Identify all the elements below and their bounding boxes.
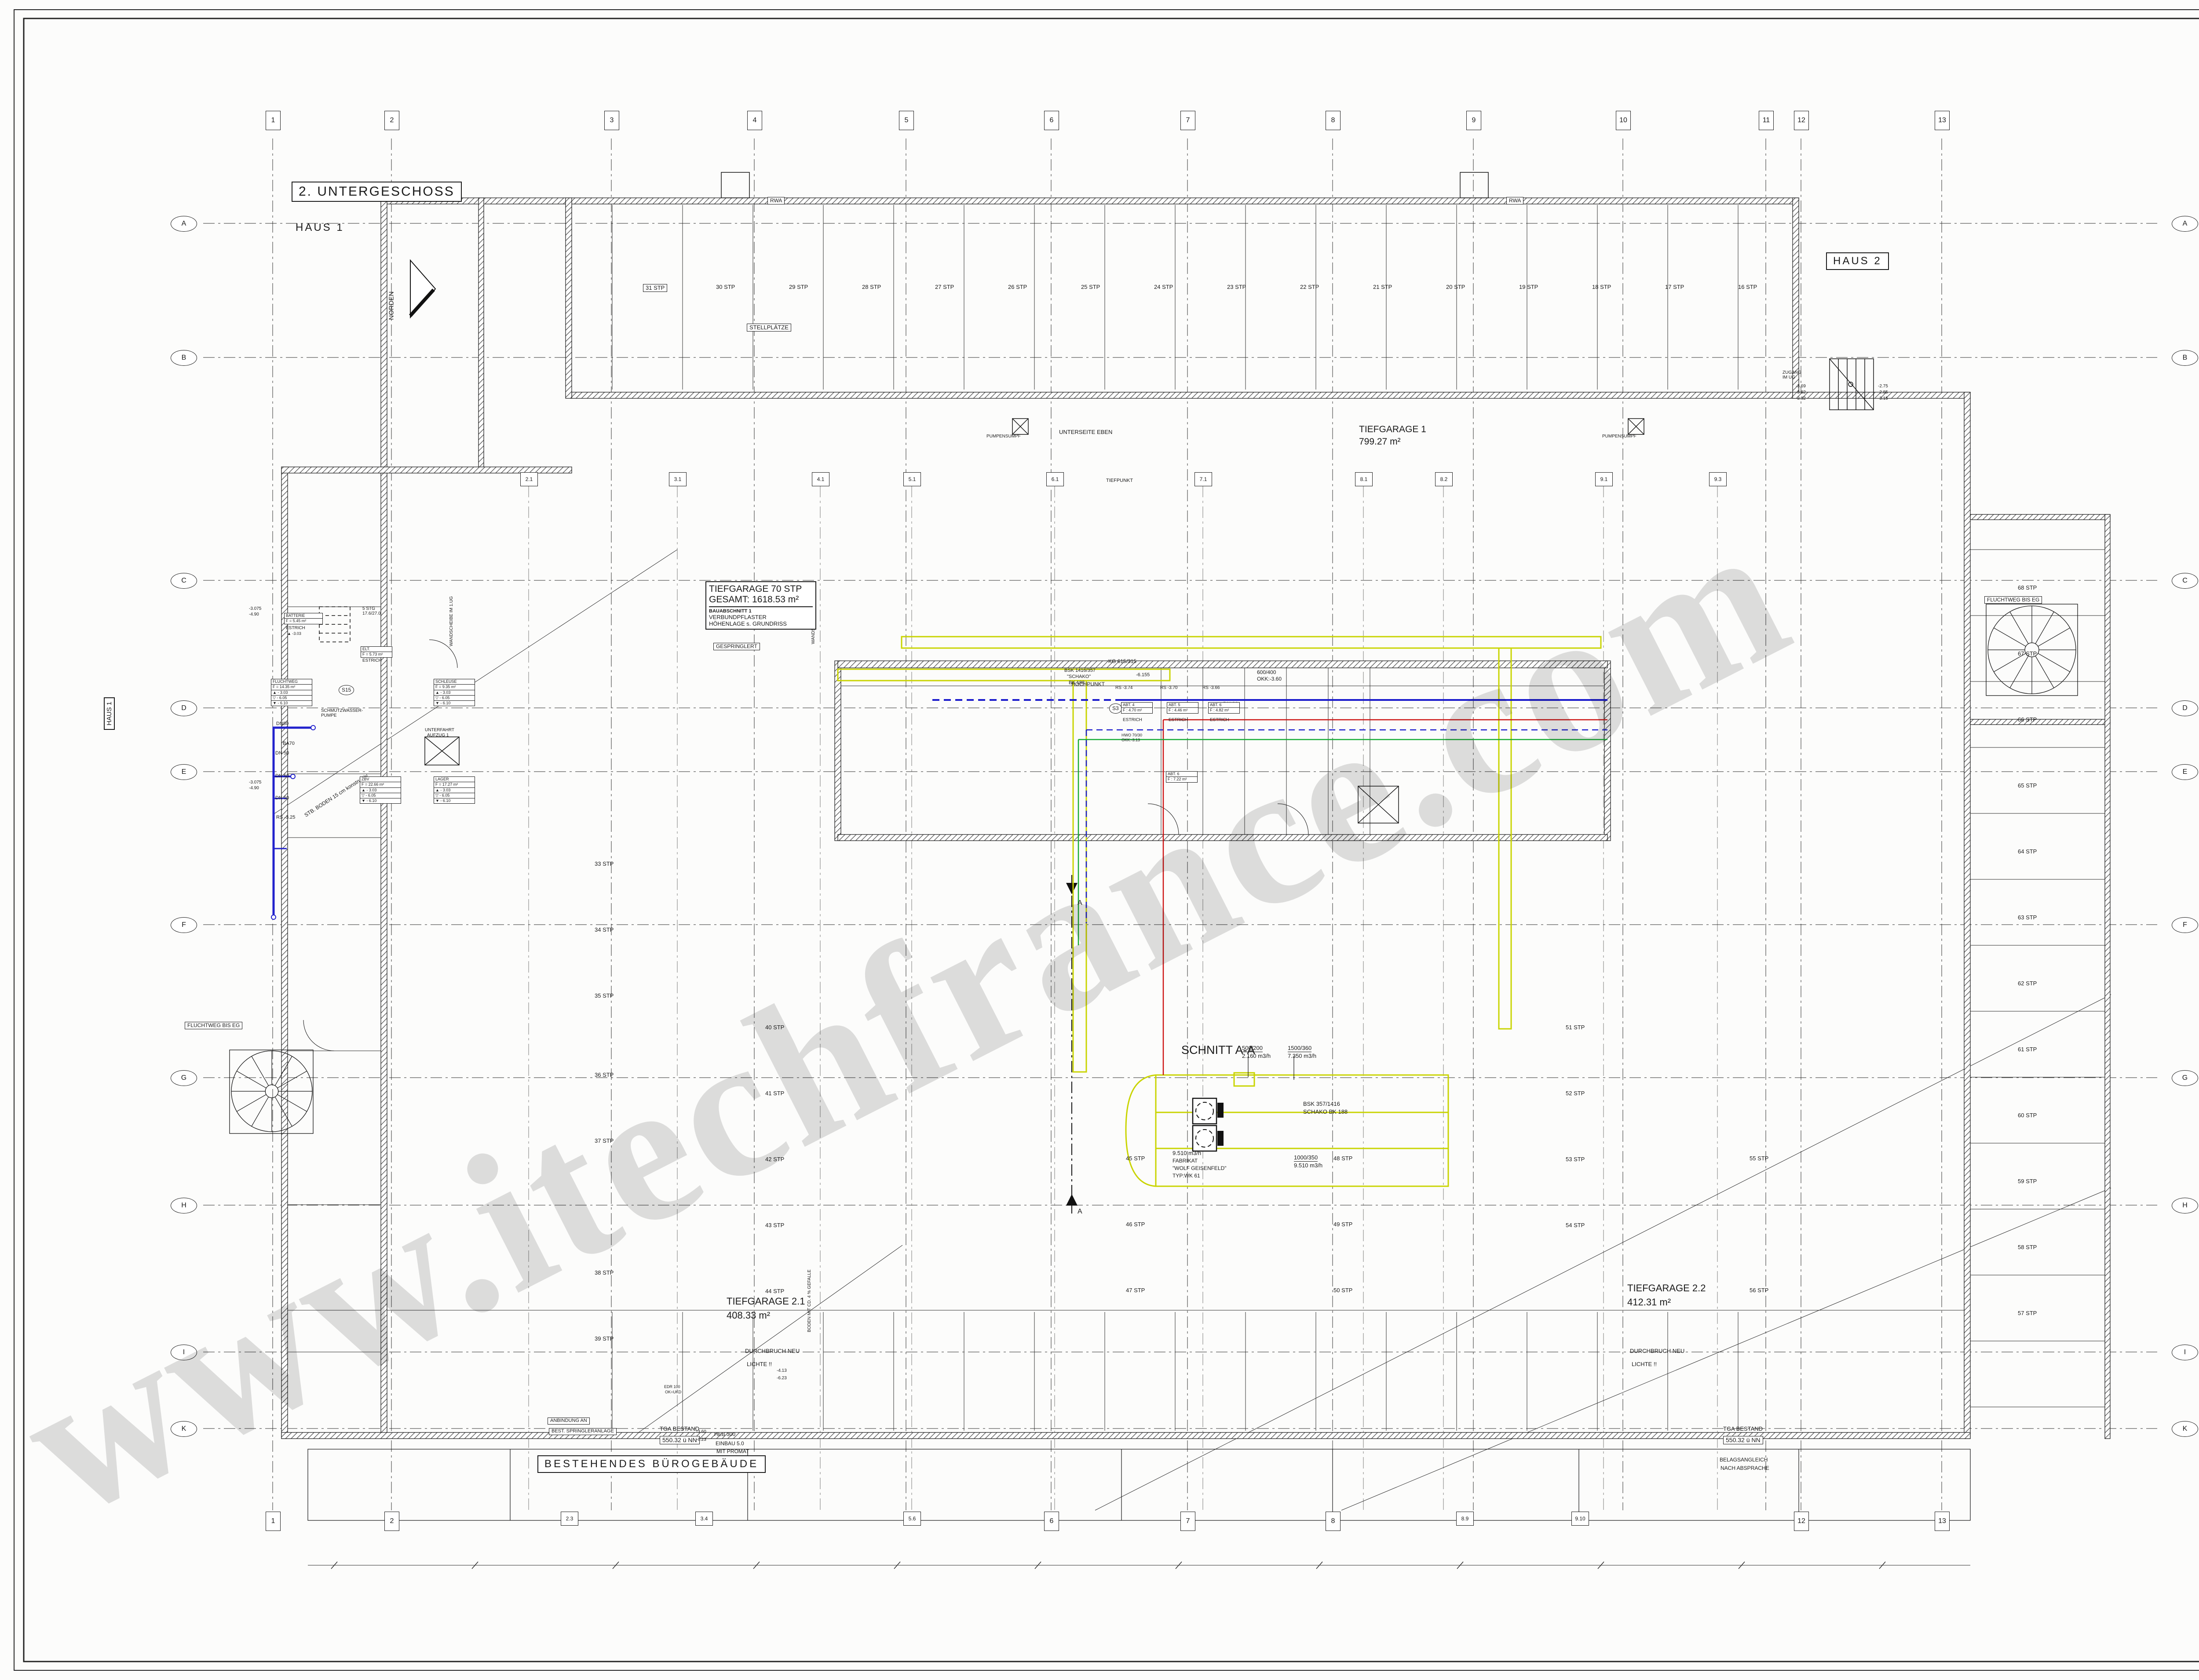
annotation: TIEFPUNKT bbox=[1106, 478, 1133, 484]
annotation: GESPRINGLERT bbox=[713, 643, 760, 650]
stall-label: 65 STP bbox=[2018, 783, 2037, 789]
stall-label: 50 STP bbox=[1333, 1287, 1352, 1294]
grid-bubble: H bbox=[2172, 1198, 2198, 1214]
stall-label: 21 STP bbox=[1373, 284, 1392, 290]
annotation: ▲ -3.03 bbox=[287, 632, 301, 636]
room-label-block: LAGERF = 17.27 m²▲ - 3.03▽ - 6.05▼ - 6.1… bbox=[434, 776, 475, 804]
grid-bubble: 9.3 bbox=[1709, 472, 1727, 486]
haus2-label: HAUS 2 bbox=[1826, 252, 1889, 270]
annotation: 5 STG bbox=[362, 607, 375, 612]
stall-label: 27 STP bbox=[935, 284, 954, 290]
annotation: 412.31 m² bbox=[1627, 1297, 1671, 1307]
room-label-line: BATTERIE bbox=[285, 613, 322, 619]
room-label-block: ABT. 6F : 7.22 m² bbox=[1166, 771, 1198, 783]
annotation: -3.075 bbox=[249, 780, 261, 785]
grid-bubble: E bbox=[2172, 764, 2198, 780]
grid-bubble: B bbox=[2172, 350, 2198, 366]
grid-bubble: 6 bbox=[1044, 111, 1059, 130]
annotation: 1000/350 bbox=[1294, 1155, 1318, 1162]
grid-bubble: 8 bbox=[1326, 111, 1341, 130]
stall-label: 37 STP bbox=[595, 1138, 614, 1144]
tg70-line3: BAUABSCHNITT 1 bbox=[709, 609, 813, 614]
grid-bubble: 8 bbox=[1326, 1512, 1341, 1531]
norden-label: NORDEN bbox=[388, 292, 395, 320]
stall-label: 30 STP bbox=[716, 284, 735, 290]
grid-bubble: 12 bbox=[1794, 111, 1809, 130]
annotation: SCHMUTZWASSER- bbox=[321, 709, 363, 714]
annotation: RWA bbox=[767, 197, 785, 204]
annotation: UNTERSEITE EBEN bbox=[1059, 429, 1112, 435]
room-label-line: ABT. 5 bbox=[1167, 703, 1198, 708]
stall-label: 53 STP bbox=[1566, 1156, 1585, 1163]
room-label-block: ABT. 6F : 4.82 m² bbox=[1208, 702, 1240, 714]
stall-label: 26 STP bbox=[1008, 284, 1027, 290]
grid-bubble: A bbox=[171, 216, 197, 232]
annotation: DN80 bbox=[276, 722, 289, 727]
stall-label: 24 STP bbox=[1154, 284, 1173, 290]
annotation: EINBAU 5.0 bbox=[716, 1441, 744, 1447]
room-label-line: ZBV bbox=[360, 777, 401, 782]
stall-label: 25 STP bbox=[1081, 284, 1100, 290]
stall-label: 66 STP bbox=[2018, 717, 2037, 723]
stall-label: 41 STP bbox=[765, 1090, 784, 1097]
annotation: PUMPE bbox=[321, 714, 337, 718]
annotation: A bbox=[1078, 900, 1082, 907]
stall-label: 34 STP bbox=[595, 927, 614, 933]
room-label-block: ABT. 4F : 4.70 m² bbox=[1121, 702, 1153, 714]
annotation: 9.510 m3/h bbox=[1294, 1163, 1322, 1169]
stall-label: 63 STP bbox=[2018, 915, 2037, 921]
grid-bubble: 1 bbox=[266, 111, 281, 130]
stall-label: 40 STP bbox=[765, 1024, 784, 1031]
grid-bubble: 5 bbox=[899, 111, 914, 130]
grid-bubble: 7 bbox=[1180, 111, 1195, 130]
annotation: DURCHBRUCH NEU bbox=[1630, 1348, 1684, 1354]
room-label-line: ELT. bbox=[361, 647, 392, 652]
grid-bubble: 7.1 bbox=[1194, 472, 1212, 486]
annotation: S3 bbox=[1109, 703, 1122, 714]
stall-label: 44 STP bbox=[765, 1288, 784, 1294]
annotation: -2.85 bbox=[1878, 390, 1888, 395]
annotation: NACH ABSPRACHE bbox=[1720, 1465, 1769, 1471]
room-label-line: ABT. 4 bbox=[1121, 703, 1152, 708]
annotation: HWO 70/30 bbox=[1121, 733, 1142, 737]
annotation: TIEFGARAGE 1 bbox=[1359, 425, 1426, 434]
annotation: BEST. SPRINGLERANLAGE bbox=[549, 1428, 617, 1435]
annotation: EDR 100 bbox=[664, 1385, 680, 1389]
annotation: OKK:-3.60 bbox=[1257, 676, 1282, 682]
annotation: TGA BESTAND bbox=[660, 1426, 699, 1432]
room-label-line: FLUCHTWEG bbox=[271, 679, 312, 685]
room-label-line: F = 5.73 m² bbox=[361, 652, 392, 657]
tg70-line1: TIEFGARAGE 70 STP bbox=[709, 584, 813, 594]
annotation: WANDSCHEIBE IM 1.UG bbox=[449, 596, 454, 646]
room-label-block: SCHLEUSEF = 9.35 m²▲ - 3.03▽ - 6.05▼ - 6… bbox=[434, 679, 475, 706]
room-label-line: LAGER bbox=[434, 777, 475, 782]
annotation: AUFZUG 1 bbox=[427, 733, 449, 738]
stall-label: 22 STP bbox=[1300, 284, 1319, 290]
annotation: BSK 1416/357 bbox=[1064, 668, 1096, 674]
stall-label: 51 STP bbox=[1566, 1024, 1585, 1031]
stall-label: 33 STP bbox=[595, 861, 614, 867]
stall-label: 31 STP bbox=[643, 284, 667, 292]
stall-label: 17 STP bbox=[1665, 284, 1684, 290]
haus1-side-label: HAUS 1 bbox=[104, 697, 115, 730]
stall-label: 67 STP bbox=[2018, 651, 2037, 657]
annotation: LICHTE !! bbox=[747, 1361, 772, 1367]
annotation: ESTRICH bbox=[1169, 718, 1188, 723]
grid-bubble: 11 bbox=[1759, 111, 1774, 130]
annotation: -3.69 bbox=[1796, 384, 1806, 389]
annotation: 550.32 ü NN bbox=[660, 1436, 700, 1444]
stall-label: 23 STP bbox=[1227, 284, 1246, 290]
stall-label: 42 STP bbox=[765, 1156, 784, 1163]
annotation: FLUCHTWEG BIS EG bbox=[1984, 596, 2042, 604]
grid-bubble: 3.1 bbox=[669, 472, 687, 486]
grid-bubble: 5.6 bbox=[903, 1512, 921, 1526]
annotation: UNTERFAHRT bbox=[425, 728, 454, 733]
annotation: RS -3.74 bbox=[1115, 686, 1132, 691]
annotation: -6.23 bbox=[696, 1438, 706, 1443]
annotation: PUMPENSUMPF bbox=[986, 434, 1021, 439]
grid-bubble: 8.2 bbox=[1435, 472, 1453, 486]
stall-label: 62 STP bbox=[2018, 980, 2037, 987]
stall-label: 28 STP bbox=[862, 284, 881, 290]
tg70-line2: GESAMT: 1618.53 m² bbox=[709, 594, 813, 607]
stall-label: 19 STP bbox=[1519, 284, 1538, 290]
grid-bubble: 2.1 bbox=[520, 472, 538, 486]
annotation: BSK 357/1416 bbox=[1303, 1101, 1340, 1107]
room-label-block: ABT. 5F : 4.46 m² bbox=[1167, 702, 1198, 714]
stall-label: 16 STP bbox=[1738, 284, 1757, 290]
stall-label: 46 STP bbox=[1126, 1221, 1145, 1228]
grid-bubble: 8.9 bbox=[1456, 1512, 1474, 1526]
grid-bubble: 2.3 bbox=[561, 1512, 578, 1526]
room-label-line: ▼ - 6.10 bbox=[271, 701, 312, 706]
grid-bubble: 4.1 bbox=[812, 472, 829, 486]
annotation: FLUCHTWEG BIS EG bbox=[185, 1022, 242, 1029]
grid-bubble: 3.4 bbox=[695, 1512, 713, 1526]
grid-bubble: 4 bbox=[747, 111, 762, 130]
annotation: RS -3.66 bbox=[1202, 686, 1220, 691]
annotation: STB. BODEN 15 cm konstruktiv bbox=[303, 773, 369, 818]
stall-label: 47 STP bbox=[1126, 1287, 1145, 1294]
stall-label: 45 STP bbox=[1126, 1155, 1145, 1162]
stall-label: 60 STP bbox=[2018, 1112, 2037, 1119]
grid-bubble: I bbox=[2172, 1345, 2198, 1360]
room-label-line: SCHLEUSE bbox=[434, 679, 475, 685]
grid-bubble: 13 bbox=[1935, 111, 1950, 130]
annotation: -3.60 bbox=[696, 1430, 706, 1435]
room-label-line: F : 7.22 m² bbox=[1166, 777, 1197, 782]
annotation: -6.23 bbox=[777, 1376, 787, 1381]
annotation: BK 188 bbox=[1069, 681, 1085, 686]
room-label-line: F : 4.46 m² bbox=[1167, 708, 1198, 713]
grid-bubble: C bbox=[171, 573, 197, 589]
room-label-block: BATTERIEF = 5.45 m² bbox=[284, 613, 323, 624]
annotation: DN 50 bbox=[275, 774, 289, 779]
stall-label: 20 STP bbox=[1446, 284, 1465, 290]
grid-bubble: 5.1 bbox=[903, 472, 921, 486]
stall-label: 54 STP bbox=[1566, 1222, 1585, 1228]
annotation: 600/400 bbox=[1257, 670, 1276, 675]
floor-title: 2. UNTERGESCHOSS bbox=[292, 182, 462, 202]
annotation: RS -3.70 bbox=[1160, 686, 1177, 691]
stall-label: 55 STP bbox=[1750, 1155, 1768, 1162]
annotation: ESTRICH bbox=[286, 626, 305, 631]
room-label-line: F : 4.82 m² bbox=[1209, 708, 1239, 713]
room-label-line: ▲ - 3.03 bbox=[434, 690, 475, 696]
room-label-line: F = 5.45 m² bbox=[285, 619, 322, 623]
annotation: -6.155 bbox=[1136, 673, 1150, 678]
annotation: DN 50 bbox=[275, 751, 289, 756]
annotation: IM UG bbox=[1783, 375, 1795, 380]
grid-bubble: F bbox=[2172, 917, 2198, 933]
annotation: 1500/360 bbox=[1288, 1045, 1311, 1052]
annotation: -3.15 bbox=[1878, 397, 1888, 401]
stall-label: 36 STP bbox=[595, 1072, 614, 1078]
annotation: LICHTE !! bbox=[1632, 1361, 1657, 1367]
annotation: ANBINDUNG AN bbox=[548, 1418, 590, 1425]
annotation: -2.75 bbox=[1878, 384, 1888, 389]
grid-bubble: 3 bbox=[604, 111, 619, 130]
annotation: BODEN MIT CD. 4 % GEFALLE bbox=[807, 1269, 812, 1332]
grid-bubble: D bbox=[2172, 700, 2198, 716]
bestand-label: BESTEHENDES BÜROGEBÄUDE bbox=[537, 1455, 766, 1473]
room-label-block: ZBVF = 22.66 m²▲ - 3.03▽ - 6.05▼ - 6.10 bbox=[360, 776, 401, 804]
grid-bubble: 13 bbox=[1935, 1512, 1950, 1531]
room-label-block: FLUCHTWEGF = 14.35 m²▲ - 3.03▽ - 6.05▼ -… bbox=[271, 679, 312, 706]
annotation: ZUGANG bbox=[1783, 371, 1801, 375]
annotation: TIEFGARAGE 2.2 bbox=[1627, 1283, 1706, 1293]
room-label-line: ▲ - 3.03 bbox=[271, 690, 312, 696]
grid-bubble: 8.1 bbox=[1355, 472, 1373, 486]
annotation: ESTRICH bbox=[362, 659, 382, 663]
annotation: SCHNITT A-A bbox=[1181, 1044, 1255, 1056]
stall-label: 57 STP bbox=[2018, 1310, 2037, 1316]
room-label-line: ▽ - 6.05 bbox=[434, 793, 475, 798]
annotation: A bbox=[1078, 1208, 1082, 1216]
annotation: -4.13 bbox=[777, 1369, 787, 1374]
stall-label: 68 STP bbox=[2018, 585, 2037, 591]
stall-label: 35 STP bbox=[595, 993, 614, 999]
annotation: OK=UKD bbox=[665, 1390, 681, 1394]
annotation: RWA bbox=[1506, 197, 1523, 204]
annotation: -4.90 bbox=[249, 786, 259, 791]
grid-bubble: G bbox=[2172, 1070, 2198, 1086]
annotation: -3.82 bbox=[1796, 390, 1806, 395]
stall-label: 39 STP bbox=[595, 1336, 614, 1342]
room-label-line: F : 4.70 m² bbox=[1121, 708, 1152, 713]
haus1-label: HAUS 1 bbox=[296, 222, 344, 233]
room-label-line: ▽ - 6.05 bbox=[271, 696, 312, 701]
annotation: TIEFGARAGE 2.1 bbox=[727, 1296, 805, 1306]
grid-bubble: 12 bbox=[1794, 1512, 1809, 1531]
annotation: ESTRICH bbox=[1123, 718, 1142, 723]
grid-bubble: 9 bbox=[1466, 111, 1481, 130]
annotation: BA70 bbox=[283, 741, 295, 747]
stall-label: 43 STP bbox=[765, 1222, 784, 1228]
annotation: STELLPLÄTZE bbox=[747, 324, 791, 332]
tg70-line4: VERBUNDPFLASTER bbox=[709, 614, 813, 620]
room-label-line: ▲ - 3.03 bbox=[434, 788, 475, 793]
annotation: 9.510 m3/h bbox=[1173, 1150, 1201, 1156]
annotation: PUMPENSUMPF bbox=[1602, 434, 1636, 439]
room-label-line: ▲ - 3.03 bbox=[360, 788, 401, 793]
room-label-line: F = 17.27 m² bbox=[434, 782, 475, 787]
annotation: 7.350 m3/h bbox=[1288, 1053, 1316, 1059]
grid-bubble: K bbox=[2172, 1421, 2198, 1437]
annotation: 408.33 m² bbox=[727, 1310, 770, 1320]
room-label-line: ▼ - 6.10 bbox=[434, 701, 475, 706]
annotation: SCHAKO BK 188 bbox=[1303, 1109, 1348, 1115]
annotation: "SCHAKO" bbox=[1067, 674, 1091, 680]
annotation: RS -3.25 bbox=[276, 815, 295, 820]
annotation: 17.6/27.0 bbox=[362, 612, 381, 616]
stall-label: 29 STP bbox=[789, 284, 808, 290]
grid-bubble: I bbox=[171, 1345, 197, 1360]
stall-label: 61 STP bbox=[2018, 1046, 2037, 1053]
grid-bubble: H bbox=[171, 1198, 197, 1214]
grid-bubble: 1 bbox=[266, 1512, 281, 1531]
tg70-line5: HÖHENLAGE s. GRUNDRISS bbox=[709, 620, 813, 627]
grid-bubble: 7 bbox=[1180, 1512, 1195, 1531]
room-label-line: ▼ - 6.10 bbox=[360, 798, 401, 803]
stall-label: 49 STP bbox=[1333, 1221, 1352, 1228]
annotation: OKK:-3.13 bbox=[1121, 738, 1140, 742]
room-label-line: ▼ - 6.10 bbox=[434, 798, 475, 803]
annotation: 550.32 ü NN bbox=[1723, 1436, 1763, 1444]
annotation: -3.075 bbox=[249, 607, 261, 612]
grid-bubble: D bbox=[171, 700, 197, 716]
annotation: BELAGSANGLEICH bbox=[1720, 1457, 1768, 1463]
annotation: MIT PROMAT bbox=[716, 1449, 749, 1454]
annotation: HEB 300 bbox=[714, 1432, 735, 1437]
grid-bubble: A bbox=[2172, 216, 2198, 232]
room-label-line: ▽ - 6.05 bbox=[360, 793, 401, 798]
plan-annotations: 2. UNTERGESCHOSS HAUS 1 HAUS 2 NORDEN BE… bbox=[0, 0, 2199, 1680]
room-label-line: F = 14.35 m² bbox=[271, 685, 312, 690]
stall-label: 59 STP bbox=[2018, 1178, 2037, 1184]
room-label-line: ▽ - 6.05 bbox=[434, 696, 475, 701]
annotation: TGA BESTAND bbox=[1723, 1426, 1763, 1432]
room-label-line: ABT. 6 bbox=[1209, 703, 1239, 708]
grid-bubble: 2 bbox=[384, 111, 399, 130]
room-label-block: ELT.F = 5.73 m² bbox=[361, 646, 392, 658]
stall-label: 64 STP bbox=[2018, 849, 2037, 855]
grid-bubble: 6.1 bbox=[1046, 472, 1064, 486]
annotation: S15 bbox=[339, 685, 354, 695]
room-label-line: ABT. 6 bbox=[1166, 772, 1197, 777]
annotation: ESTRICH bbox=[1210, 718, 1229, 723]
annotation: TYP:WK 61 bbox=[1173, 1173, 1200, 1179]
grid-bubble: 9.1 bbox=[1595, 472, 1613, 486]
stall-label: 52 STP bbox=[1566, 1090, 1585, 1097]
grid-bubble: G bbox=[171, 1070, 197, 1086]
annotation: -3.92 bbox=[1796, 397, 1806, 401]
stall-label: 48 STP bbox=[1333, 1155, 1352, 1162]
annotation: DURCHBRUCH NEU bbox=[745, 1348, 800, 1354]
room-label-line: F = 22.66 m² bbox=[360, 782, 401, 787]
annotation: 799.27 m² bbox=[1359, 437, 1401, 447]
room-label-line: F = 9.35 m² bbox=[434, 685, 475, 690]
stall-label: 18 STP bbox=[1592, 284, 1611, 290]
annotation: "WOLF GEISENFELD" bbox=[1173, 1166, 1227, 1171]
grid-bubble: 6 bbox=[1044, 1512, 1059, 1531]
drawing-sheet: 2. UNTERGESCHOSS HAUS 1 HAUS 2 NORDEN BE… bbox=[0, 0, 2199, 1680]
grid-bubble: 9.10 bbox=[1571, 1512, 1589, 1526]
grid-bubble: F bbox=[171, 917, 197, 933]
stall-label: 38 STP bbox=[595, 1270, 614, 1276]
tg70-block: TIEFGARAGE 70 STP GESAMT: 1618.53 m² BAU… bbox=[705, 581, 816, 630]
stall-label: 58 STP bbox=[2018, 1244, 2037, 1250]
annotation: FABRIKAT bbox=[1173, 1158, 1198, 1164]
grid-bubble: 2 bbox=[384, 1512, 399, 1531]
annotation: -4.90 bbox=[249, 612, 259, 617]
stall-label: 56 STP bbox=[1750, 1287, 1768, 1294]
grid-bubble: B bbox=[171, 350, 197, 366]
grid-bubble: 10 bbox=[1616, 111, 1631, 130]
annotation: DN 50 bbox=[275, 796, 289, 801]
annotation: KG 615/315 bbox=[1108, 659, 1136, 664]
grid-bubble: E bbox=[171, 764, 197, 780]
grid-bubble: K bbox=[171, 1421, 197, 1437]
grid-bubble: C bbox=[2172, 573, 2198, 589]
